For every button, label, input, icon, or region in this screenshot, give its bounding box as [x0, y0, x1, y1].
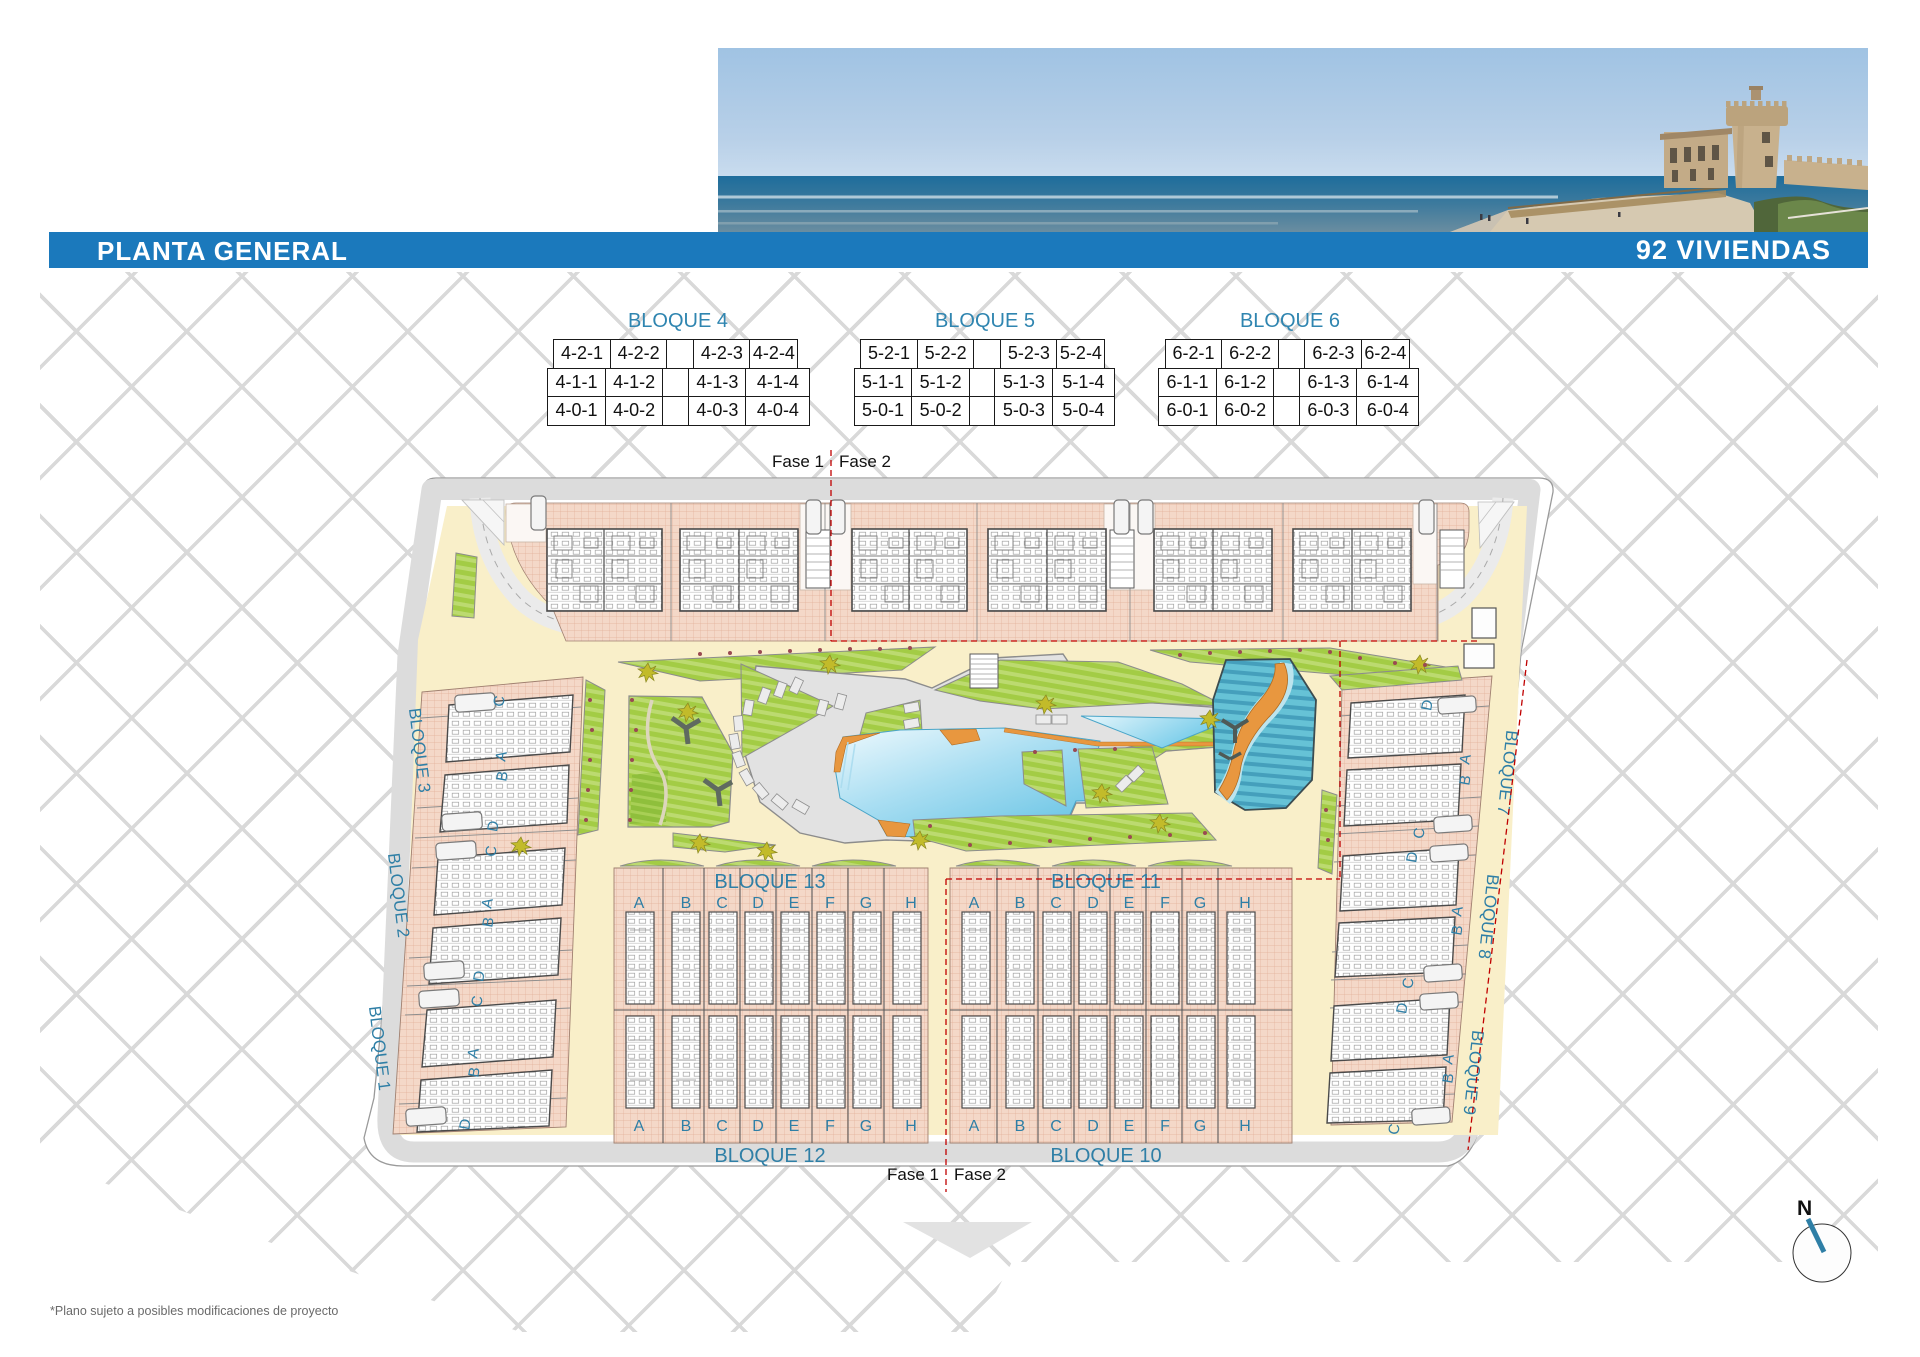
svg-text:F: F: [1160, 1118, 1170, 1135]
svg-text:H: H: [1239, 895, 1251, 912]
svg-text:F: F: [825, 1118, 835, 1135]
svg-text:C: C: [1050, 895, 1062, 912]
svg-text:B: B: [1015, 895, 1026, 912]
svg-text:BLOQUE 13: BLOQUE 13: [714, 871, 825, 893]
svg-text:E: E: [1124, 1118, 1135, 1135]
svg-text:D: D: [1087, 895, 1099, 912]
svg-text:Fase 1: Fase 1: [772, 452, 824, 471]
svg-text:G: G: [1194, 1118, 1206, 1135]
svg-text:BLOQUE 12: BLOQUE 12: [714, 1145, 825, 1167]
svg-text:H: H: [905, 895, 917, 912]
svg-text:D: D: [1087, 1118, 1099, 1135]
svg-text:A: A: [634, 895, 645, 912]
svg-text:E: E: [1124, 895, 1135, 912]
svg-text:G: G: [860, 1118, 872, 1135]
svg-text:E: E: [789, 895, 800, 912]
svg-text:BLOQUE 11: BLOQUE 11: [1051, 871, 1161, 893]
svg-text:C: C: [716, 895, 728, 912]
svg-text:C: C: [716, 1118, 728, 1135]
svg-text:A: A: [969, 1118, 980, 1135]
svg-text:Fase 1: Fase 1: [887, 1165, 939, 1184]
svg-text:A: A: [969, 895, 980, 912]
svg-text:Fase 2: Fase 2: [839, 452, 891, 471]
svg-text:F: F: [1160, 895, 1170, 912]
svg-text:B: B: [1015, 1118, 1026, 1135]
svg-text:D: D: [752, 1118, 764, 1135]
svg-text:E: E: [789, 1118, 800, 1135]
svg-text:D: D: [752, 895, 764, 912]
svg-text:B: B: [681, 895, 692, 912]
svg-text:N: N: [1797, 1197, 1812, 1220]
svg-text:Fase 2: Fase 2: [954, 1165, 1006, 1184]
svg-text:G: G: [1194, 895, 1206, 912]
svg-text:G: G: [860, 895, 872, 912]
svg-text:H: H: [905, 1118, 917, 1135]
svg-text:C: C: [1050, 1118, 1062, 1135]
svg-text:H: H: [1239, 1118, 1251, 1135]
svg-text:B: B: [681, 1118, 692, 1135]
svg-text:F: F: [825, 895, 835, 912]
svg-text:BLOQUE 10: BLOQUE 10: [1050, 1145, 1161, 1167]
svg-text:A: A: [634, 1118, 645, 1135]
